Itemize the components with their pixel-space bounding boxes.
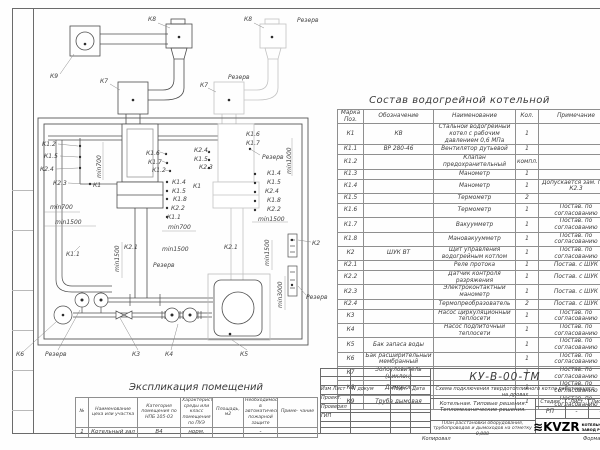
parts-table-cell: Щит управления водогрейным котлом <box>434 246 516 260</box>
explication-header-cell: Необходимость в автоматической пожарной … <box>244 398 278 428</box>
parts-table-header-row: Марка Поз. Обозначение Наименование Кол.… <box>338 110 600 124</box>
parts-table-cell: 1 <box>516 338 539 352</box>
parts-table-cell: Бак запаса воды <box>364 338 434 352</box>
plan-label: К2.4 <box>40 166 54 173</box>
plan-label: К8 <box>148 16 156 23</box>
explication-cell: 1 <box>76 427 89 437</box>
titleblock-line <box>535 406 600 407</box>
parts-table-cell <box>364 169 434 179</box>
plan-leader-line <box>160 152 166 154</box>
parts-table-cell: К5 <box>338 338 364 352</box>
parts-table-cell: 1 <box>516 285 539 299</box>
parts-table-title: Состав водогрейной котельной <box>337 95 582 106</box>
explication-cell: В4 <box>138 427 181 437</box>
parts-table-cell: 1 <box>516 309 539 323</box>
parts-table-cell: 1 <box>516 145 539 155</box>
plan-leader-line <box>110 84 120 90</box>
titleblock-line <box>320 412 430 413</box>
plan-label: К1.5 <box>172 188 186 195</box>
plan-label: min1500 <box>258 216 285 223</box>
parts-table-cell: Постав. по согласованию <box>539 246 600 260</box>
plan-label: min1500 <box>162 246 189 253</box>
explication-title: Экспликация помещений <box>75 382 317 393</box>
plan-label: К6 <box>16 351 24 358</box>
parts-table: Марка Поз. Обозначение Наименование Кол.… <box>337 109 600 410</box>
plan-label: К1.1 <box>66 251 80 258</box>
titleblock-line <box>320 427 430 428</box>
parts-table-row: К1.7Вакуумметр1Постав. по согласованию <box>338 218 600 232</box>
parts-table-cell <box>539 145 600 155</box>
parts-table-cell <box>364 324 434 338</box>
titleblock-line <box>535 418 600 419</box>
parts-table-row: К5Бак запаса воды1Постав. по согласовани… <box>338 338 600 352</box>
rev-row-project: Проект. <box>321 395 342 401</box>
parts-table-cell <box>434 352 516 366</box>
plan-label: К1.2 <box>42 141 56 148</box>
parts-table-cell: К1.8 <box>338 232 364 246</box>
parts-table-row: К1.8Мановакуумметр1Постав. по согласован… <box>338 232 600 246</box>
explication-header-cell: Наименование цеха или участка <box>89 398 138 428</box>
drawing-sheet: К9К8К7К8РезервК7РезервК1.2К1.5К2.4К2.3К1… <box>0 0 600 450</box>
sheet-title: План расстановки оборудования, трубопров… <box>432 421 533 437</box>
parts-table-cell <box>364 271 434 285</box>
parts-table-row: К4Насос подпиточный теплосети1Постав. по… <box>338 324 600 338</box>
parts-table-cell: К1.6 <box>338 203 364 217</box>
explication-header-cell: Приме- чание <box>278 398 318 428</box>
titleblock-line <box>320 421 430 422</box>
plan-label: К7 <box>200 82 208 89</box>
plan-label: К1.7 <box>246 140 260 147</box>
parts-table-cell: Стальной водогрейный котел с рабочим дав… <box>434 124 516 145</box>
plan-label: К1.1 <box>167 214 181 221</box>
parts-table-cell <box>364 232 434 246</box>
parts-table-cell <box>364 218 434 232</box>
parts-table-cell: 1 <box>516 246 539 260</box>
parts-table-cell: КВ <box>364 124 434 145</box>
parts-table-row: К2.3Электроконтактный манометр1Постав. с… <box>338 285 600 299</box>
parts-table-cell: компл. <box>516 155 539 169</box>
format-label: Формат <box>583 436 600 442</box>
parts-table-cell: Бак расширительный мембранный <box>364 352 434 366</box>
parts-table-row: К2.4Термопреобразователь2Постав. с ШУК <box>338 299 600 309</box>
plan-label: К2.1 <box>124 244 138 251</box>
plan-label: К1.5 <box>194 156 208 163</box>
parts-table-row: К1.3Манометр1 <box>338 169 600 179</box>
parts-header-name: Наименование <box>434 110 516 124</box>
plan-label: К1.2 <box>152 167 166 174</box>
rev-row-gip: ГИП <box>321 413 331 419</box>
plan-label: К2 <box>312 240 320 247</box>
parts-table-cell: К1.7 <box>338 218 364 232</box>
parts-table-cell: К1.5 <box>338 193 364 203</box>
parts-table-cell: 1 <box>516 261 539 271</box>
explication-cell: Котельный зал <box>89 427 138 437</box>
plan-label: К1 <box>93 182 101 189</box>
parts-table-cell: Постав. по согласованию <box>539 352 600 366</box>
explication-header-cell: № <box>76 398 89 428</box>
plan-label: К2.4 <box>194 147 208 154</box>
plan-label: Резерв <box>228 74 250 81</box>
parts-table-cell: 1 <box>516 203 539 217</box>
reserve-chimney-set <box>214 19 286 124</box>
parts-table-cell: К2.4 <box>338 299 364 309</box>
panel-k2 <box>288 234 297 296</box>
parts-table-cell <box>364 299 434 309</box>
plan-label: К1.6 <box>246 131 260 138</box>
plan-label: Резерв <box>45 351 67 358</box>
parts-table-cell: Постав. с ШУК <box>539 271 600 285</box>
kvzr-wave-icon: ≋ <box>533 420 543 434</box>
parts-table-cell: К2.2 <box>338 271 364 285</box>
parts-table-cell: 1 <box>516 218 539 232</box>
parts-table-row: К2ШУК ВТЩит управления водогрейным котло… <box>338 246 600 260</box>
parts-table-cell: К4 <box>338 324 364 338</box>
explication-header-row: №Наименование цеха или участкаКатегория … <box>76 398 318 428</box>
plan-label: Резерв <box>297 17 319 24</box>
plan-leader-line <box>60 156 78 157</box>
plan-label: К7 <box>100 78 108 85</box>
parts-table-cell: Манометр <box>434 169 516 179</box>
parts-table-cell <box>364 261 434 271</box>
parts-table-row: К2.1Реле протока1Постав. с ШУК <box>338 261 600 271</box>
parts-table-cell: 1 <box>516 169 539 179</box>
plan-label: min700 <box>168 224 191 231</box>
parts-table-cell: Вакуумметр <box>434 218 516 232</box>
kvzr-logo: ≋KVZRКОТЕЛЬНЫЙЗАВОД РОССИИ <box>533 421 599 433</box>
parts-table-cell: Реле протока <box>434 261 516 271</box>
parts-table-cell: 1 <box>516 124 539 145</box>
parts-table-cell: К2.1 <box>338 261 364 271</box>
plan-label: К1.6 <box>146 150 160 157</box>
parts-table-cell <box>539 155 600 169</box>
parts-table-cell: Термометр <box>434 193 516 203</box>
plan-label: К8 <box>244 16 252 23</box>
list-value: - <box>565 408 588 415</box>
plan-label: Резерв <box>306 294 328 301</box>
plan-leader-line <box>298 240 311 242</box>
plan-leader-line <box>60 54 74 74</box>
parts-table-cell: 1 <box>516 179 539 193</box>
explication-cell: - <box>244 427 278 437</box>
parts-table-cell: Датчик контроля разряжения <box>434 271 516 285</box>
plan-label: К1.5 <box>267 179 281 186</box>
plan-label: К1.8 <box>267 197 281 204</box>
plan-label: min1000 <box>286 147 293 174</box>
parts-table-cell <box>364 179 434 193</box>
plan-label: К1.4 <box>267 170 281 177</box>
document-number: КУ-В-00-ТМ <box>430 371 580 384</box>
list-label: Лист <box>565 399 588 405</box>
plan-label: min1500 <box>114 245 121 272</box>
explication-table: №Наименование цеха или участкаКатегория … <box>75 397 318 438</box>
parts-table-cell <box>539 169 600 179</box>
parts-table-row: К1.1ВР 280-46Вентилятор дутьевой1 <box>338 145 600 155</box>
parts-table-row: К2.2Датчик контроля разряжения1Постав. с… <box>338 271 600 285</box>
section-title: Котельная. Типовые решения. Тепломеханич… <box>433 401 533 414</box>
parts-table-cell: Постав. по согласованию <box>539 232 600 246</box>
parts-header-note: Примечание <box>539 110 600 124</box>
plan-label: К2.4 <box>265 188 279 195</box>
parts-table-cell <box>364 155 434 169</box>
parts-table-cell: 1 <box>516 271 539 285</box>
parts-table-cell: 2 <box>516 299 539 309</box>
parts-table-row: К1.6Термометр1Постав. по согласованию <box>338 203 600 217</box>
plan-label: К3 <box>132 351 140 358</box>
parts-table-cell: Постав. по согласованию <box>539 324 600 338</box>
parts-table-cell: К1.2 <box>338 155 364 169</box>
parts-table-row: К1.4Манометр1Допускается зам. поз. К2.3 <box>338 179 600 193</box>
plan-label: min1500 <box>264 239 271 266</box>
tank-k5 <box>208 274 270 340</box>
titleblock-line <box>320 376 430 377</box>
parts-table-cell: Термопреобразователь <box>434 299 516 309</box>
parts-table-row: К3Насос циркуляционный теплосети1Постав.… <box>338 309 600 323</box>
copied-label: Копировал <box>422 436 451 442</box>
plan-leader-line <box>208 88 216 92</box>
parts-table-cell: 2 <box>516 193 539 203</box>
parts-table-cell <box>364 285 434 299</box>
plan-label: min1500 <box>55 219 82 226</box>
plan-label: min700 <box>50 204 73 211</box>
parts-table-cell: К6 <box>338 352 364 366</box>
parts-table-cell: 1 <box>516 324 539 338</box>
scheme-title: Схема подключения твердотопливного котла… <box>435 386 595 398</box>
parts-table-cell: Постав. с ШУК <box>539 285 600 299</box>
plan-leader-line <box>58 144 78 146</box>
titleblock-line <box>390 368 391 433</box>
plan-label: К2.2 <box>267 206 281 213</box>
parts-table-cell: Постав. по согласованию <box>539 338 600 352</box>
plan-leader-line <box>56 168 78 169</box>
plan-label: Резерв <box>153 262 175 269</box>
chimney-set <box>70 19 192 124</box>
plan-label: К1.8 <box>173 196 187 203</box>
parts-table-row: К1КВСтальной водогрейный котел с рабочим… <box>338 124 600 145</box>
parts-table-cell: 1 <box>516 352 539 366</box>
explication-cell: норм. <box>181 427 213 437</box>
explication-cell <box>278 427 318 437</box>
parts-table-cell: К1 <box>338 124 364 145</box>
plan-label: К2.2 <box>171 205 185 212</box>
parts-table-cell: Допускается зам. поз. К2.3 <box>539 179 600 193</box>
titleblock-line <box>320 368 600 369</box>
rev-col-data: Дата <box>412 386 425 392</box>
plan-label: К5 <box>240 351 248 358</box>
parts-table-row: К1.2Клапан предохранительныйкомпл. <box>338 155 600 169</box>
parts-header-designation: Обозначение <box>364 110 434 124</box>
plan-leader-line <box>24 322 56 351</box>
explication-header-cell: Площадь, м2 <box>213 398 244 428</box>
plan-label: К4 <box>165 351 173 358</box>
parts-table-cell: К1.1 <box>338 145 364 155</box>
parts-header-qty: Кол. <box>516 110 539 124</box>
plan-label: К2.1 <box>224 244 238 251</box>
parts-table-cell <box>364 203 434 217</box>
plan-label: К1 <box>193 183 201 190</box>
company-line2: ЗАВОД РОССИИ <box>582 428 600 432</box>
explication-header-cell: Характеристика среды или класс помещения… <box>181 398 213 428</box>
titleblock-line <box>410 368 411 433</box>
parts-table-cell: Вентилятор дутьевой <box>434 145 516 155</box>
plan-label: min3000 <box>277 281 284 308</box>
parts-table-cell: К1.3 <box>338 169 364 179</box>
plan-leader-line <box>162 161 167 163</box>
plan-leader-line <box>171 324 178 350</box>
parts-table-cell: Постав. по согласованию <box>539 309 600 323</box>
parts-table-cell: К3 <box>338 309 364 323</box>
parts-header-mark: Марка Поз. <box>338 110 364 124</box>
parts-table-row: К1.5Термометр2 <box>338 193 600 203</box>
plan-leader-line <box>68 183 88 184</box>
explication-header-cell: Категория помещения по НПБ 105-03 <box>138 398 181 428</box>
plan-label: Резерв <box>262 154 284 161</box>
titleblock-line <box>350 368 351 433</box>
stage-value: РП <box>535 408 565 415</box>
parts-table-cell: Насос подпиточный теплосети <box>434 324 516 338</box>
rev-col-ndoc: N докум <box>352 386 374 392</box>
parts-table-cell <box>364 309 434 323</box>
parts-table-cell: К1.4 <box>338 179 364 193</box>
parts-table-cell <box>539 124 600 145</box>
explication-cell <box>213 427 244 437</box>
listov-value: - <box>588 408 600 415</box>
parts-table-cell: Манометр <box>434 179 516 193</box>
plan-label: К1.7 <box>148 159 162 166</box>
parts-table-cell: Постав. с ШУК <box>539 299 600 309</box>
parts-table-cell: ШУК ВТ <box>364 246 434 260</box>
parts-table-row: К6Бак расширительный мембранный1Постав. … <box>338 352 600 366</box>
plan-label: К1.4 <box>172 179 186 186</box>
parts-table-cell: Термометр <box>434 203 516 217</box>
plan-label: К2.3 <box>53 180 67 187</box>
parts-table-cell <box>539 193 600 203</box>
parts-table-cell: К2.3 <box>338 285 364 299</box>
parts-table-cell: 1 <box>516 232 539 246</box>
explication-data-row: 1Котельный залВ4норм.- <box>76 427 318 437</box>
kvzr-logo-text: KVZR <box>543 420 580 434</box>
parts-table-cell: ВР 280-46 <box>364 145 434 155</box>
parts-table-cell <box>434 338 516 352</box>
plan-label: К2.3 <box>199 164 213 171</box>
plan-label: К9 <box>50 73 58 80</box>
parts-table-cell: К2 <box>338 246 364 260</box>
rev-col-izm-list: Изм Лист <box>321 386 345 392</box>
rev-col-podp: Подп. <box>392 386 407 392</box>
plan-label: К1.5 <box>44 153 58 160</box>
listov-label: Листов <box>588 399 600 405</box>
parts-table-cell <box>364 193 434 203</box>
parts-table-cell: Постав. по согласованию <box>539 218 600 232</box>
parts-table-cell: Электроконтактный манометр <box>434 285 516 299</box>
stage-label: Стадия <box>535 399 565 405</box>
parts-table-cell: Мановакуумметр <box>434 232 516 246</box>
parts-table-cell: Постав. с ШУК <box>539 261 600 271</box>
company-line1: КОТЕЛЬНЫЙ <box>582 423 600 427</box>
parts-table-cell: Постав. по согласованию <box>539 203 600 217</box>
plan-label: min700 <box>96 155 103 178</box>
parts-table-cell: Насос циркуляционный теплосети <box>434 309 516 323</box>
parts-table-cell: Клапан предохранительный <box>434 155 516 169</box>
rev-row-checked: Проверил <box>321 404 347 410</box>
